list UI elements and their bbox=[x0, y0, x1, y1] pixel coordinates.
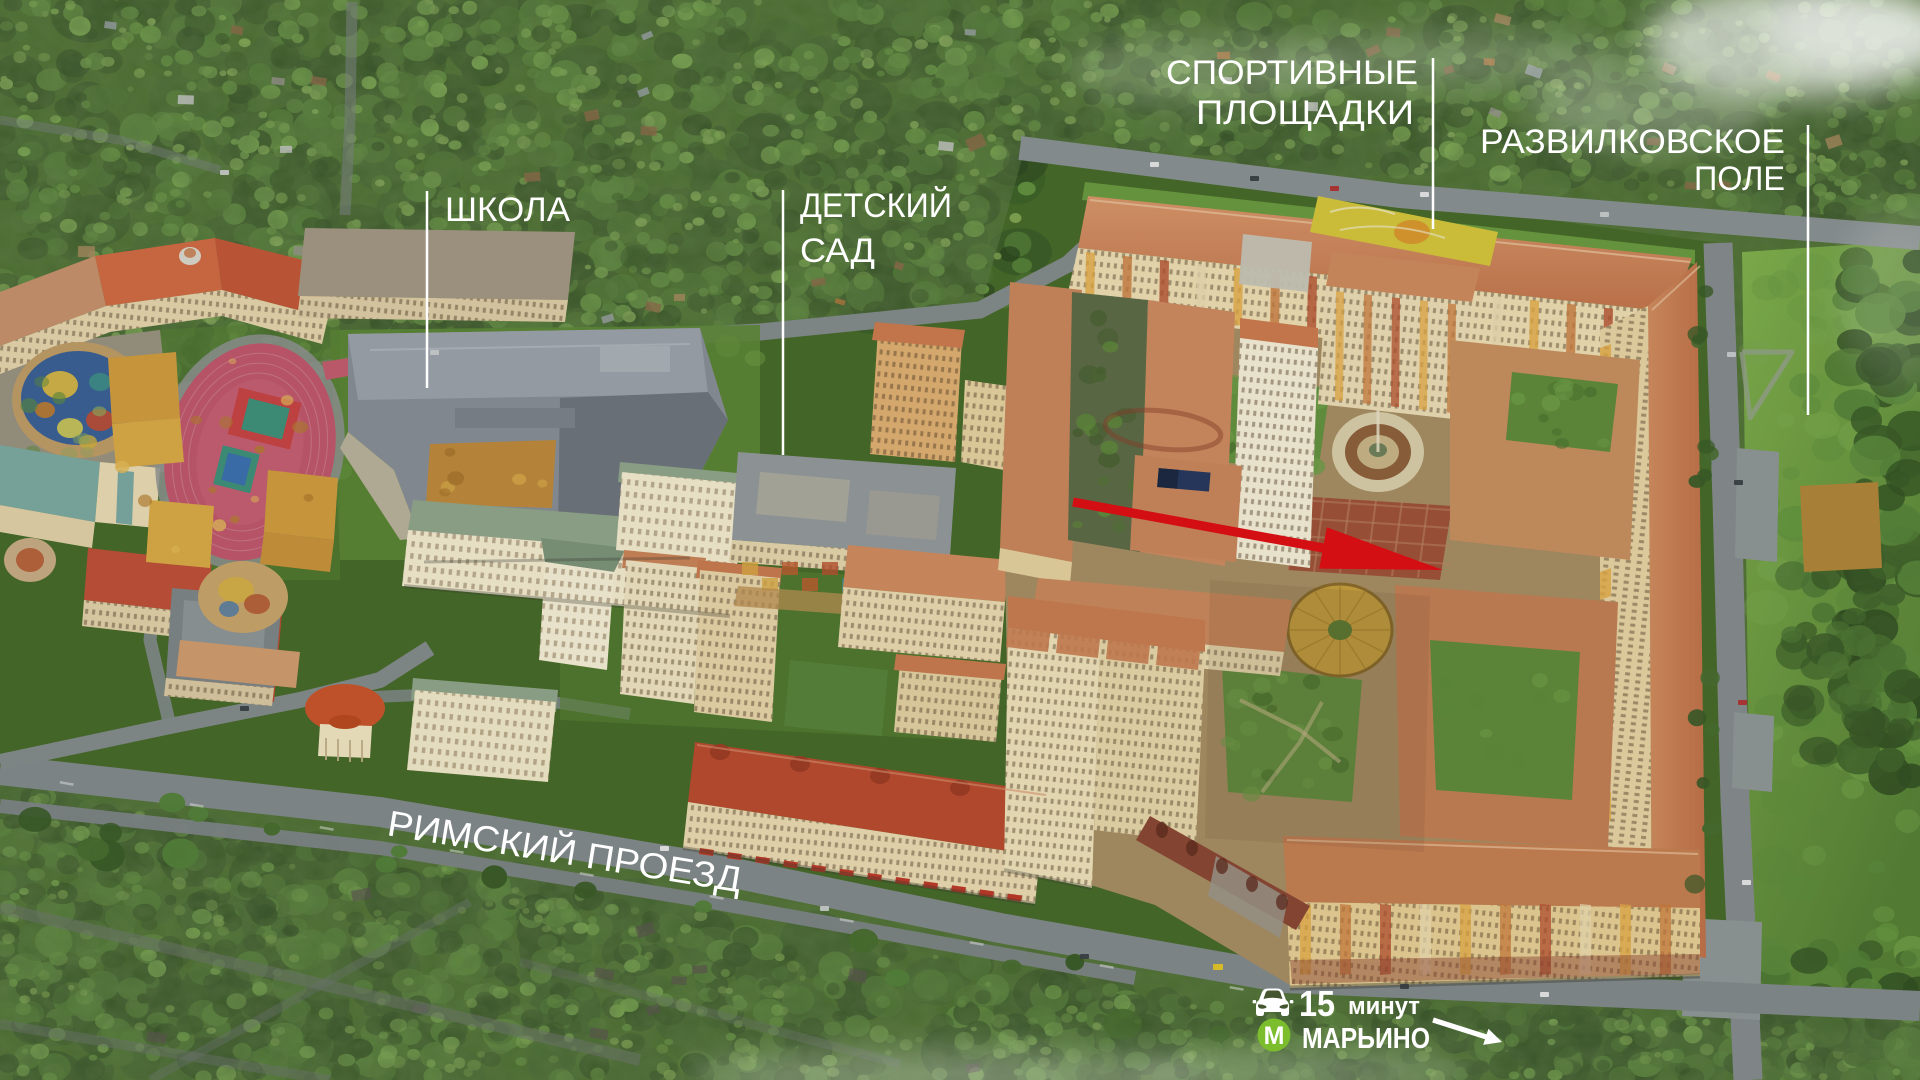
svg-text:ДЕТСКИЙ: ДЕТСКИЙ bbox=[800, 187, 952, 225]
svg-text:СПОРТИВНЫЕ: СПОРТИВНЫЕ bbox=[1166, 54, 1418, 92]
svg-text:М: М bbox=[1264, 1022, 1285, 1050]
svg-text:РАЗВИЛКОВСКОЕ: РАЗВИЛКОВСКОЕ bbox=[1480, 123, 1785, 161]
svg-text:минут: минут bbox=[1348, 993, 1420, 1020]
svg-text:ПОЛЕ: ПОЛЕ bbox=[1694, 160, 1785, 198]
svg-text:МАРЬИНО: МАРЬИНО bbox=[1302, 1023, 1430, 1055]
svg-text:ПЛОЩАДКИ: ПЛОЩАДКИ bbox=[1196, 94, 1414, 132]
svg-text:ШКОЛА: ШКОЛА bbox=[445, 191, 570, 229]
svg-text:15: 15 bbox=[1299, 983, 1335, 1024]
svg-text:САД: САД bbox=[800, 232, 875, 270]
